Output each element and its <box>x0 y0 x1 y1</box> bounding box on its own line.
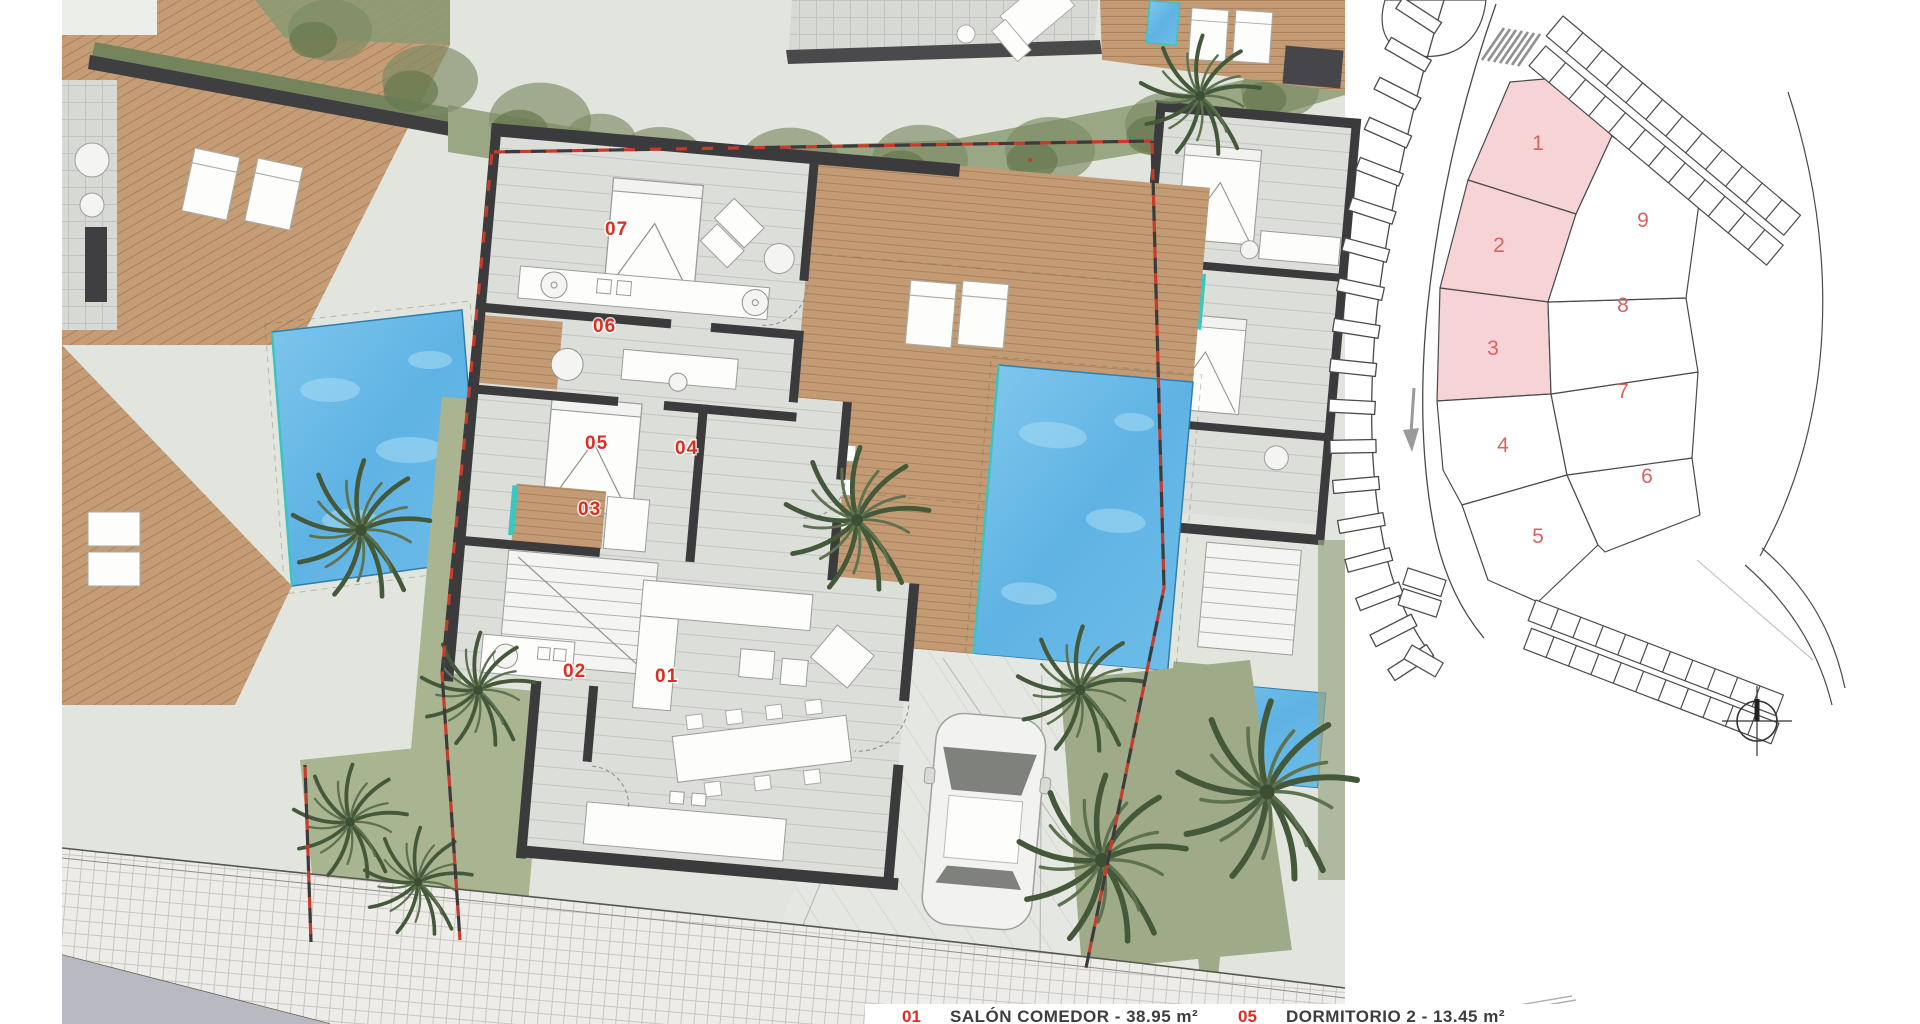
legend-item-label: DORMITORIO 2 - 13.45 m² <box>1286 1007 1505 1024</box>
plot-label-5: 5 <box>1532 525 1544 548</box>
key-plan: 1 2 3 4 5 6 7 8 9 <box>1329 0 1845 756</box>
plot-label-7: 7 <box>1617 380 1629 403</box>
plot-label-9: 9 <box>1637 209 1649 232</box>
mirror <box>924 767 935 784</box>
road-hatch <box>1482 28 1540 66</box>
room-label-02: 02 <box>563 661 586 682</box>
unit-strip-bottom <box>1518 600 1789 744</box>
legend-item-label: SALÓN COMEDOR - 38.95 m² <box>950 1007 1198 1024</box>
legend-item-number: 01 <box>902 1007 921 1024</box>
main-site-plan: 07 06 05 04 03 02 01 <box>62 0 1376 1024</box>
room-label-07: 07 <box>605 219 628 240</box>
neighbor-patio-top <box>786 0 1102 64</box>
room-label-04: 04 <box>675 438 698 459</box>
stairs <box>1198 542 1302 655</box>
wall <box>85 227 107 302</box>
plot-label-1: 1 <box>1532 132 1544 155</box>
patio-table <box>75 143 109 177</box>
room-label-06: 06 <box>593 316 616 337</box>
plot-label-4: 4 <box>1497 434 1509 457</box>
site-plan-drawing: 07 06 05 04 03 02 01 <box>0 0 1920 1024</box>
windshield <box>940 747 1037 797</box>
site-plan-page: 07 06 05 04 03 02 01 <box>0 0 1920 1024</box>
plot-label-6: 6 <box>1641 465 1653 488</box>
wall <box>1282 46 1343 89</box>
pool-sliver <box>1146 1 1180 45</box>
page-margin-left <box>0 0 62 1024</box>
plot-label-2: 2 <box>1493 234 1505 257</box>
room-label-05: 05 <box>585 433 608 454</box>
direction-arrow-icon <box>1403 388 1419 452</box>
legend-item-number: 05 <box>1238 1007 1257 1024</box>
plot-label-3: 3 <box>1487 337 1499 360</box>
room-label-01: 01 <box>655 666 678 687</box>
plot-label-8: 8 <box>1617 294 1629 317</box>
room-label-03: 03 <box>578 499 601 520</box>
car-roof <box>944 795 1023 863</box>
